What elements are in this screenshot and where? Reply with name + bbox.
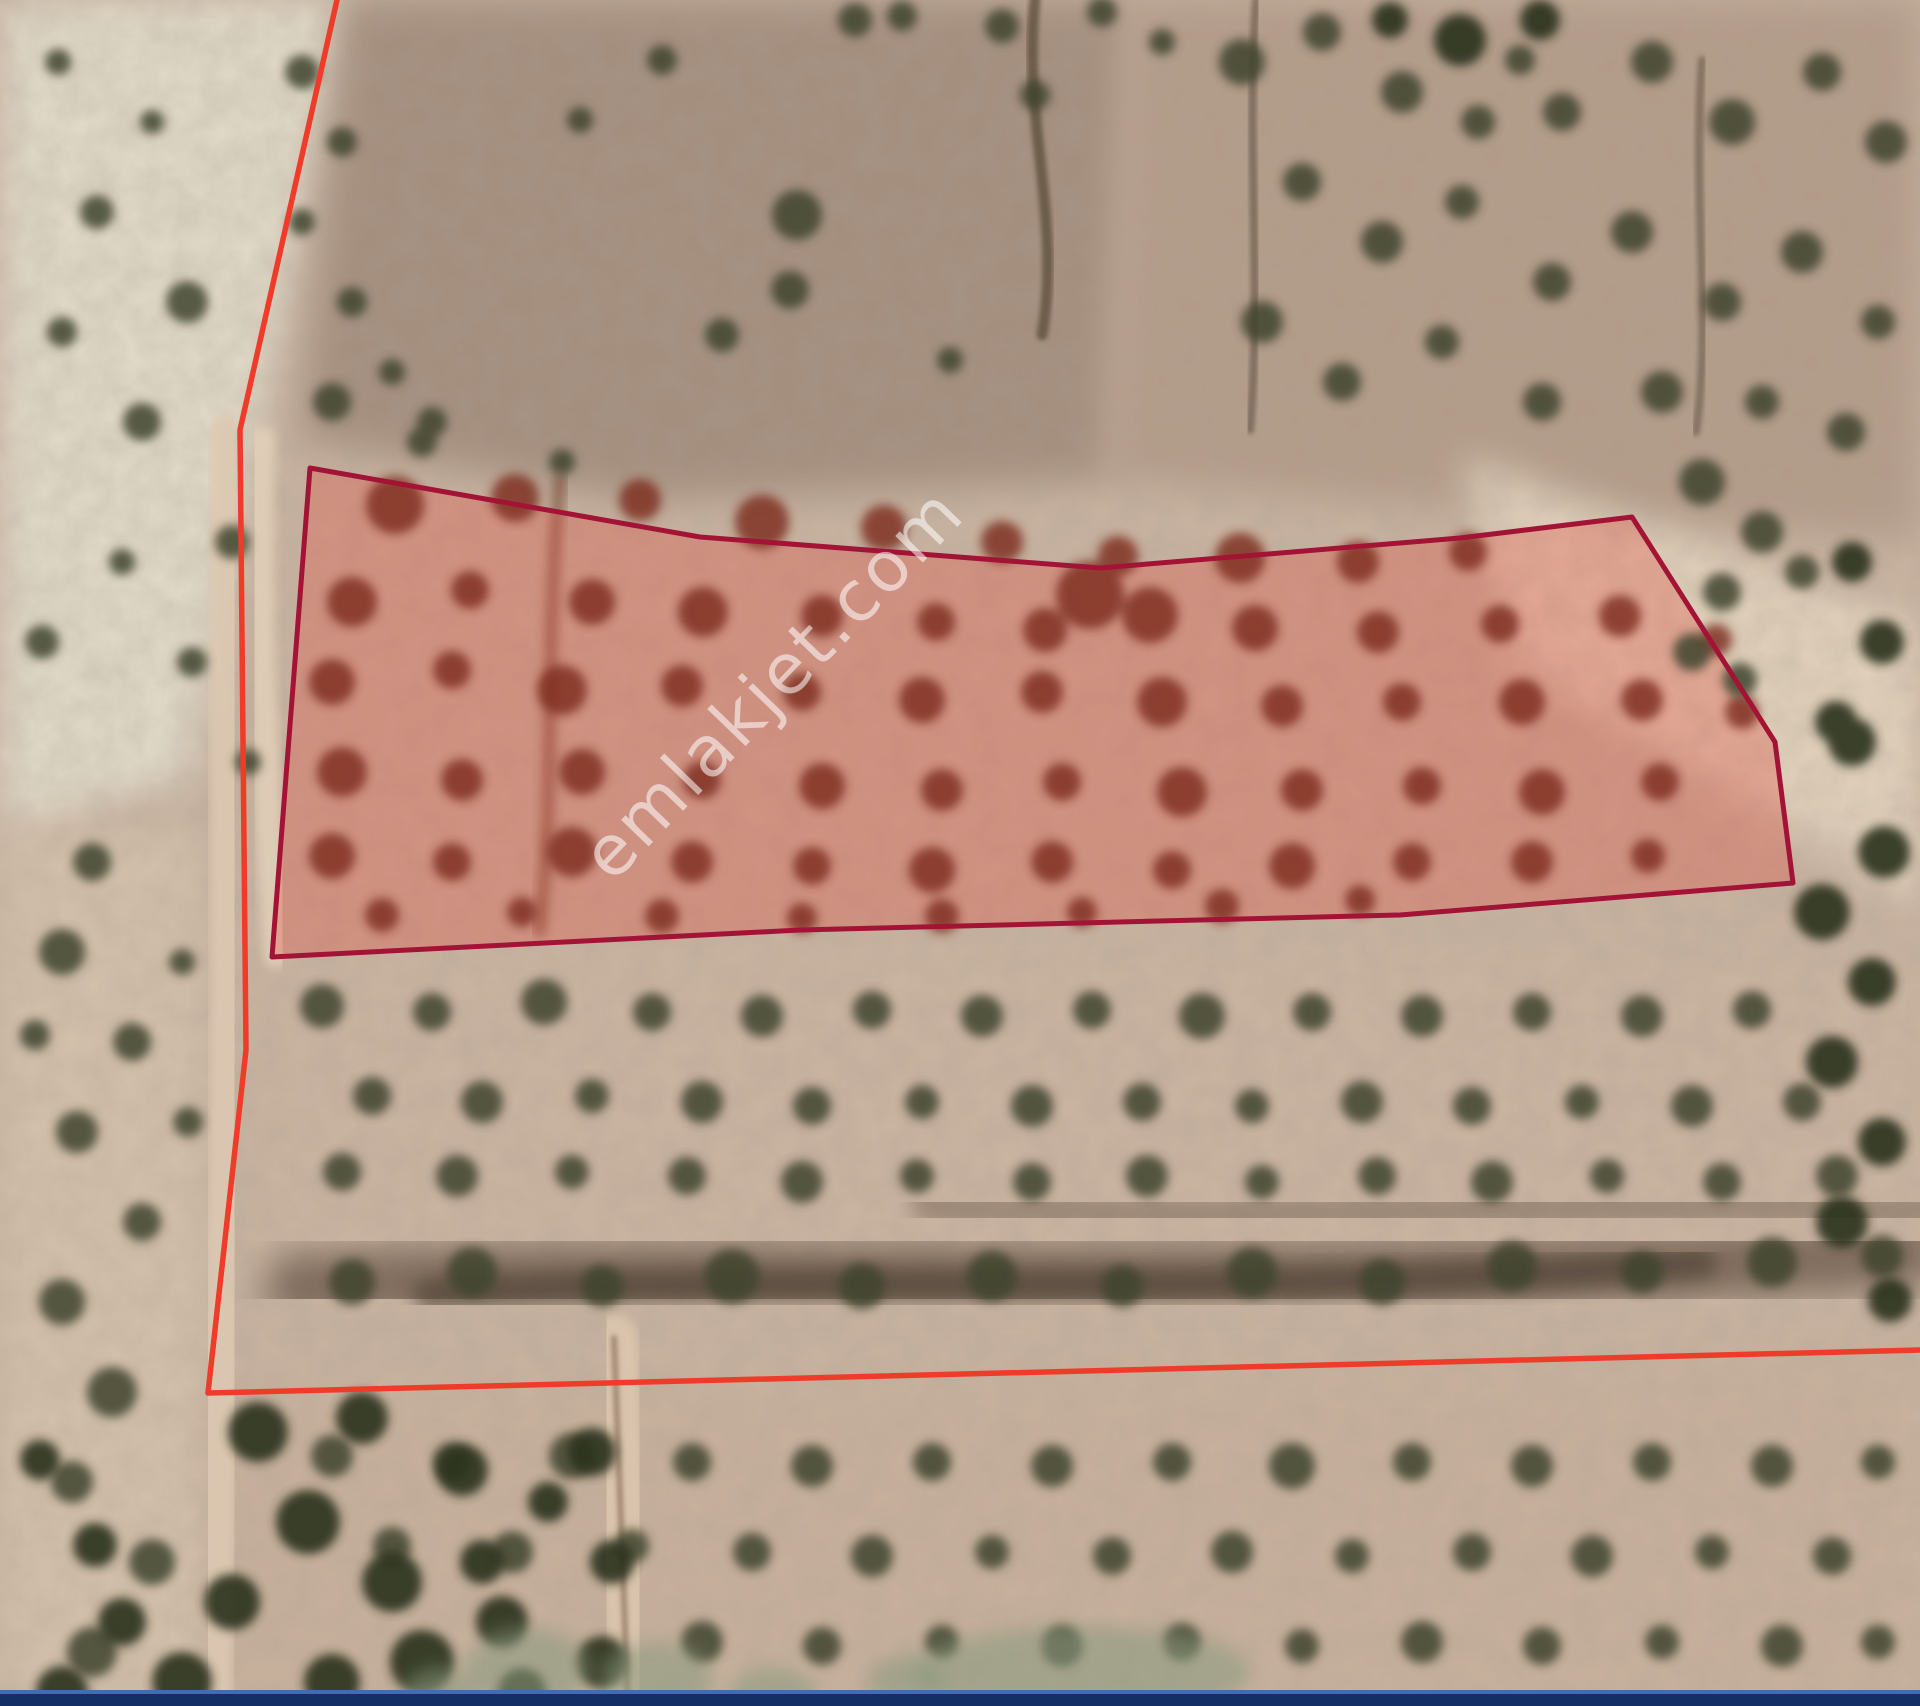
dirt-road [261,440,276,955]
satellite-parcel-image: emlakjet.com [0,0,1920,1706]
bottom-bar-main [0,1694,1920,1706]
dirt-road [214,430,228,1700]
bottom-blue-bar [0,1690,1920,1706]
satellite-map: emlakjet.com [0,0,1920,1706]
vegetation-band [930,1205,1920,1215]
